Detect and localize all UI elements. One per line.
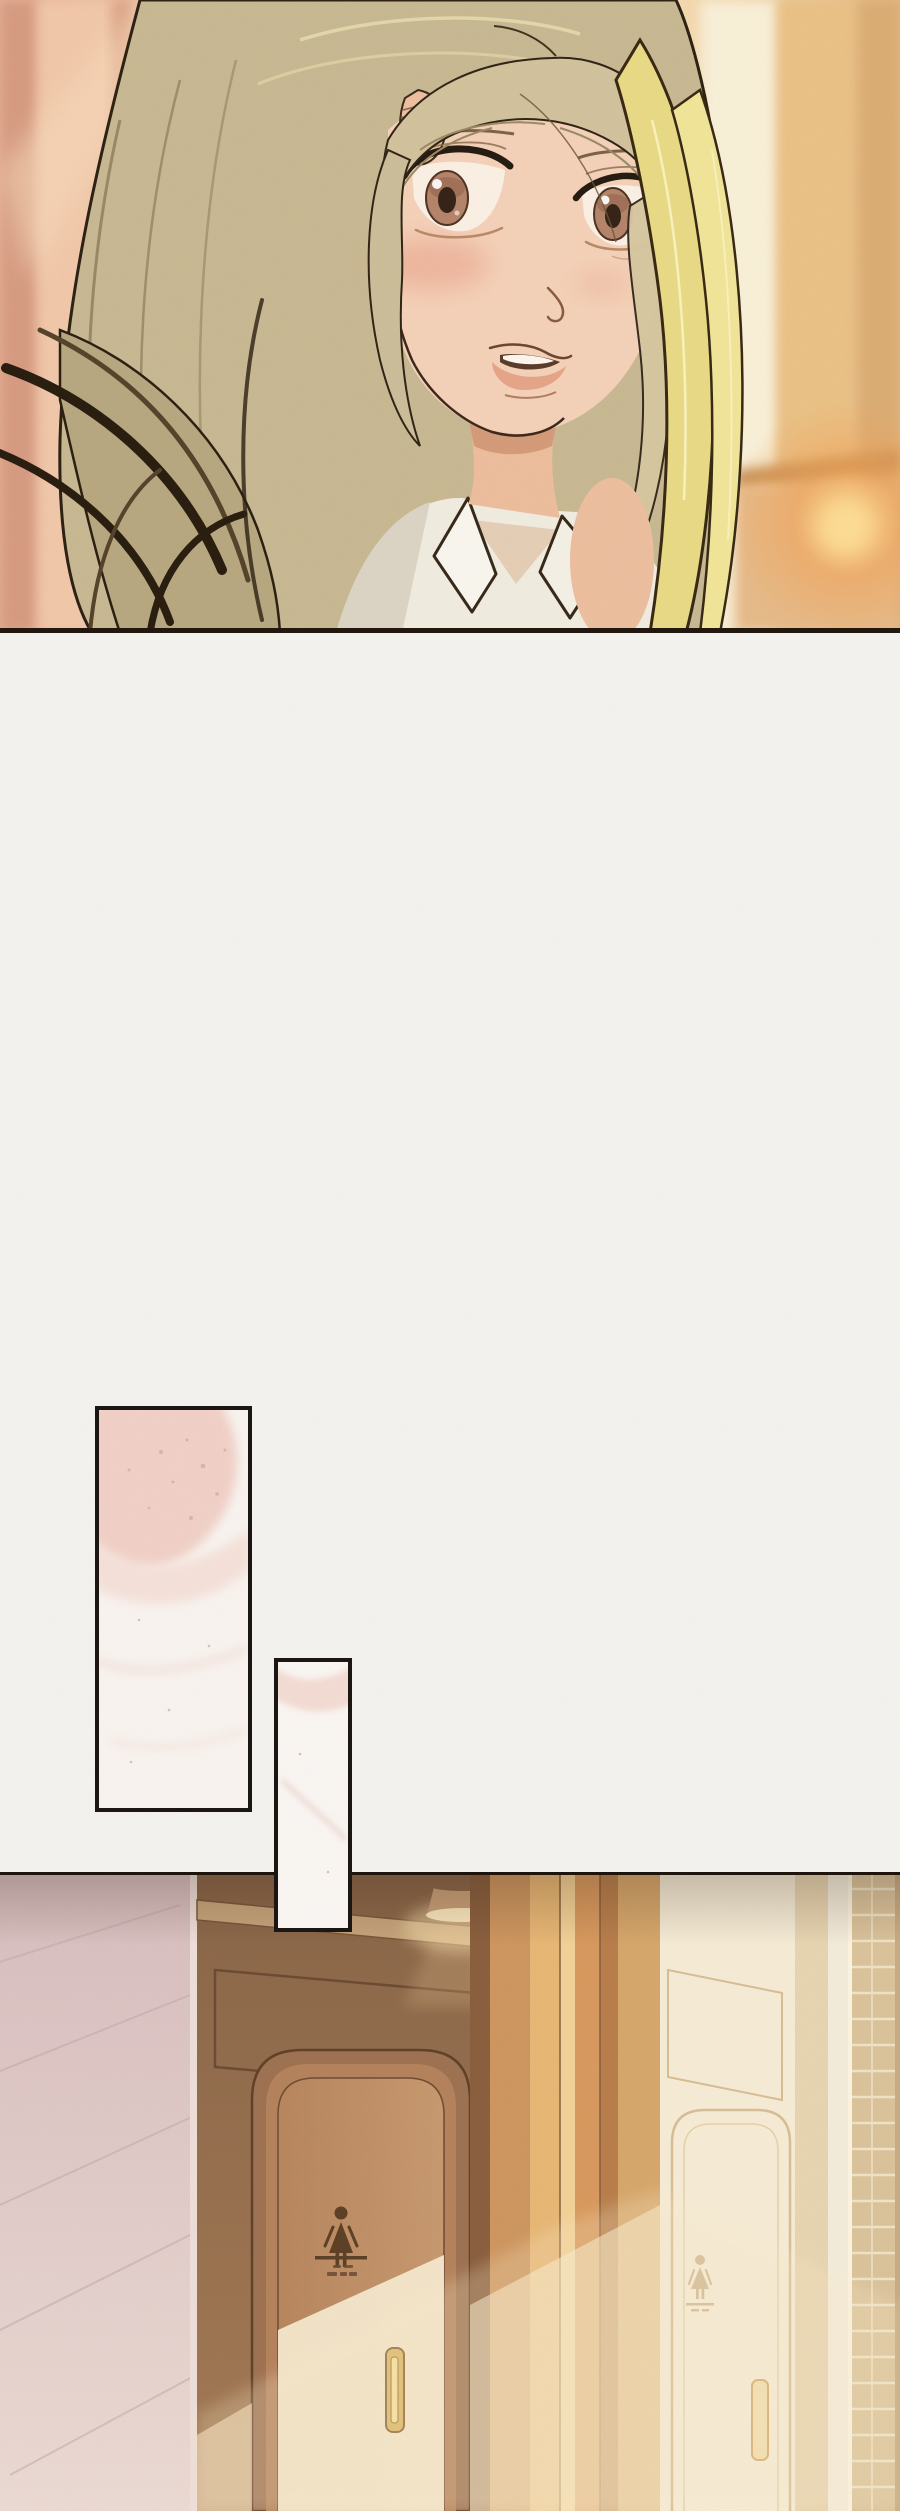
panel-portrait bbox=[0, 0, 900, 633]
inset-a-art bbox=[99, 1410, 248, 1808]
door-sign-bar bbox=[315, 2256, 367, 2260]
top-vignette bbox=[0, 1875, 900, 1945]
portrait-art bbox=[0, 0, 900, 633]
restroom-scene-art bbox=[0, 1875, 900, 2511]
panel-bottom-border bbox=[0, 628, 900, 633]
blush-right bbox=[576, 271, 628, 297]
inset-panel-closeup-bottom bbox=[274, 1658, 352, 1932]
inset-b-art bbox=[278, 1662, 348, 1928]
webtoon-page bbox=[0, 0, 900, 2511]
panel-restroom-door-scene bbox=[0, 1872, 900, 2511]
marble-wall bbox=[0, 1875, 197, 2511]
inset-panel-closeup-top bbox=[95, 1406, 252, 1812]
